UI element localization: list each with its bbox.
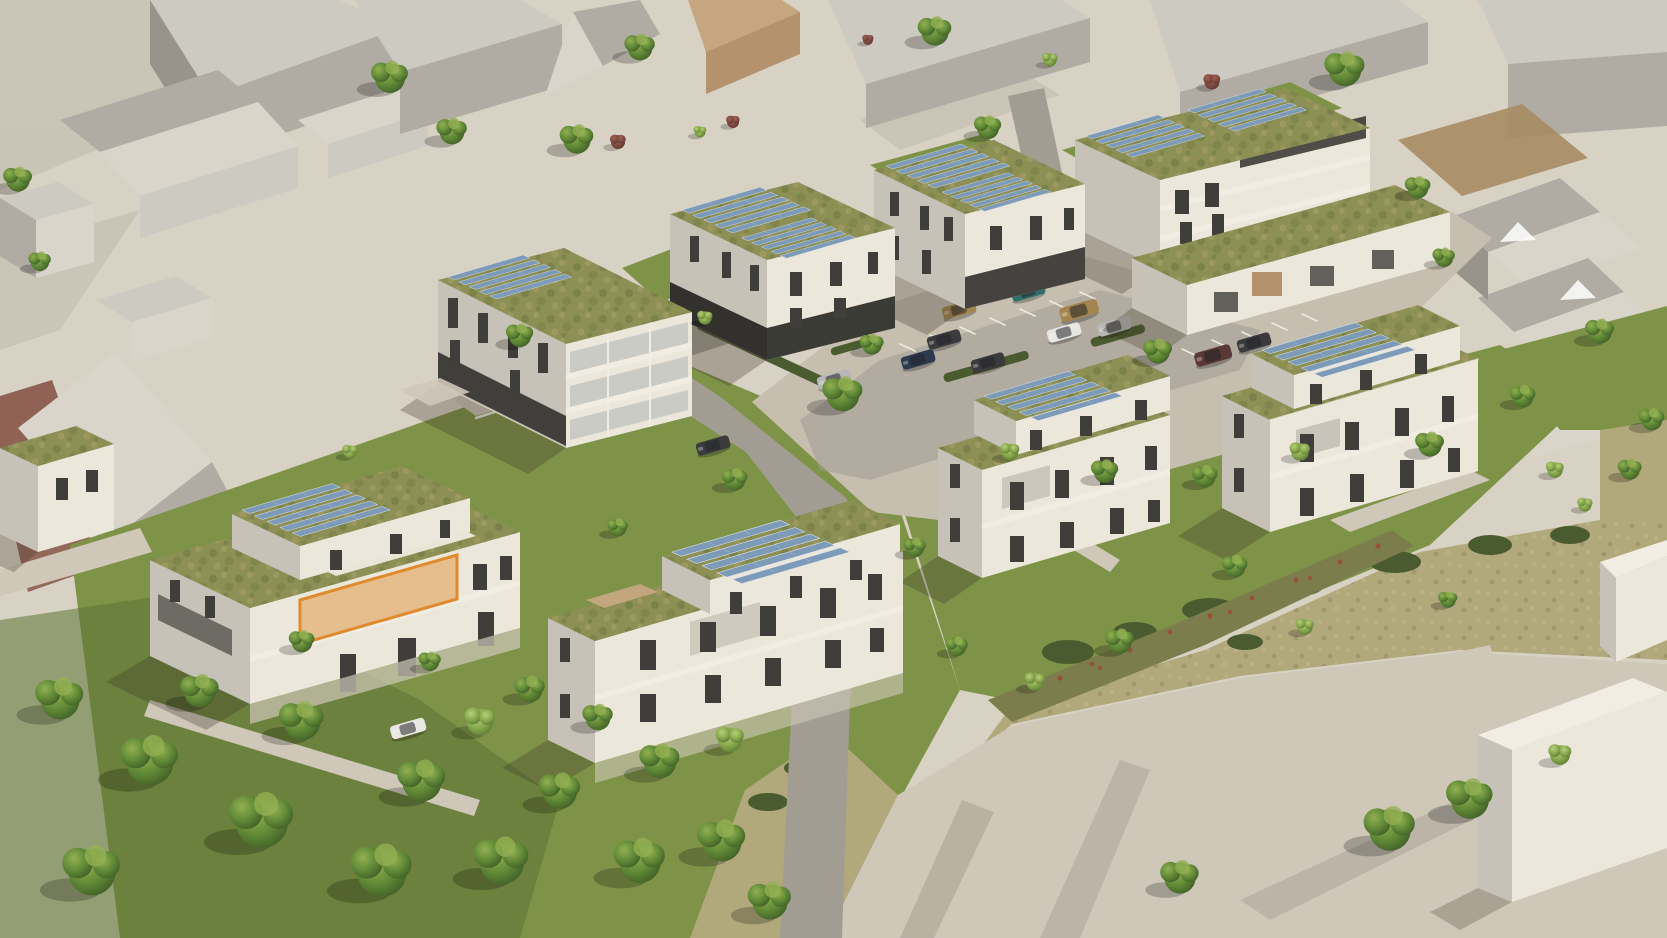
- garage-door: [1252, 272, 1282, 296]
- architectural-rendering: [0, 0, 1667, 938]
- site-rendering-canvas: [0, 0, 1667, 938]
